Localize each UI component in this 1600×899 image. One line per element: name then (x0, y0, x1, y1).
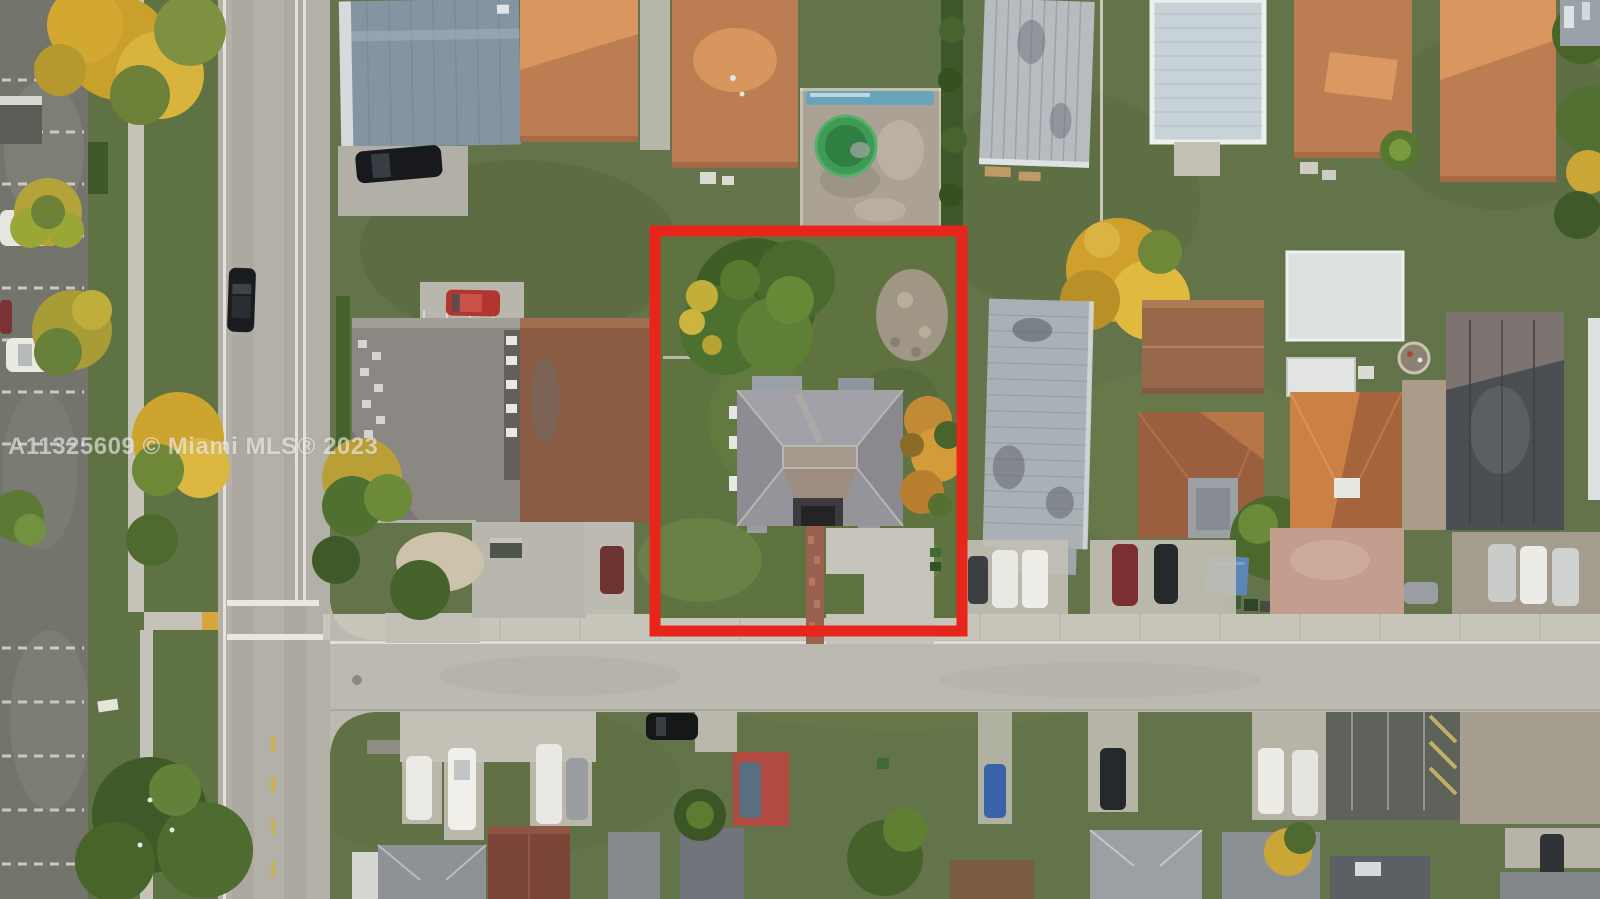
terracotta-roof-g (1440, 0, 1556, 182)
side-ac-units (729, 406, 737, 491)
subject-lot (638, 236, 965, 644)
driveway-apron-west (385, 613, 480, 643)
aerial-photo: A11325609 © Miami MLS® 2023 (0, 0, 1600, 899)
dirt-lot-southeast (1460, 712, 1600, 824)
gray-hip-roof-south-1 (378, 845, 486, 899)
brown-roof-house-north (1142, 300, 1264, 394)
parked-car-gray-partial (1404, 582, 1438, 604)
white-fence-line (1100, 0, 1103, 230)
palm-tree (1380, 130, 1420, 170)
dirt-patch (876, 269, 948, 361)
dark-asphalt-lot (1326, 712, 1460, 820)
street-parked-cars-east (958, 540, 1236, 614)
terracotta-roof-c (672, 0, 798, 185)
car-white-pickup (536, 744, 562, 824)
parked-car-silver-2 (1552, 548, 1579, 606)
car-dark-southeast (1540, 834, 1564, 876)
small-shed (490, 538, 522, 558)
parked-car-maroon (600, 546, 624, 594)
lane-line-1 (295, 0, 298, 602)
car-black-on-vertical-road (227, 268, 256, 333)
gray-hip-roof-south-2 (1090, 830, 1202, 899)
hedge-strip (938, 0, 967, 232)
silver-metal-roof-long (982, 299, 1094, 576)
manhole (352, 675, 362, 685)
car-windshield (18, 344, 32, 366)
parked-car-white-3 (1520, 546, 1547, 604)
car-bluegray-on-red-drive (739, 762, 761, 818)
hedge-block (88, 142, 108, 194)
orange-lit-roof-house (1290, 392, 1402, 534)
dark-flat-roof-building (1446, 312, 1564, 530)
duplex-south-concrete (472, 522, 586, 618)
crosswalk-bar-south (227, 634, 325, 640)
road-edge-line-north (330, 641, 1600, 644)
driveway-pad-lower (864, 574, 934, 618)
car-black-south (1100, 748, 1126, 810)
parked-car-darkgray (968, 556, 988, 604)
silver-mobile-home-roof (979, 0, 1095, 183)
terracotta-roof-b (520, 0, 638, 142)
brown-tile-roof-south (488, 826, 570, 899)
lane-line-2 (303, 0, 306, 602)
parked-car-black (1154, 544, 1178, 604)
corner-building (0, 96, 42, 144)
driveway-pad-upper (826, 528, 934, 574)
parked-car-red-sliver (0, 300, 12, 334)
car-white-4 (1258, 748, 1284, 814)
subject-house (729, 376, 903, 533)
parked-car-white-1 (992, 550, 1018, 608)
car-white-5 (1292, 750, 1318, 816)
tactile-ramp (202, 612, 218, 630)
parked-car-silver-1 (1488, 544, 1516, 602)
pool-backyard (800, 88, 942, 232)
patio-table-circle (1399, 343, 1429, 373)
top-right-gray-structure (1560, 0, 1600, 46)
crosswalk-bar-north (227, 600, 319, 606)
sandy-side-yard (1402, 380, 1448, 530)
parked-car-white-2 (1022, 550, 1048, 608)
roof-cupola (1334, 478, 1360, 498)
vertical-street (218, 0, 330, 899)
green-bin (877, 758, 889, 769)
path-between-houses (640, 0, 670, 150)
charcoal-roof-south (1330, 856, 1430, 899)
car-black-on-horizontal-road (646, 713, 698, 740)
parked-car-red (446, 290, 500, 317)
left-parking-lot (0, 0, 90, 899)
car-gray-sedan (566, 758, 588, 820)
aerial-photo-canvas (0, 0, 1600, 899)
car-white-sedan (406, 756, 432, 820)
parked-car-darkred (1112, 544, 1138, 606)
bluegray-metal-roof-house (339, 0, 522, 148)
white-roof-strip-east (1588, 318, 1600, 500)
south-concrete-pad (400, 712, 596, 762)
car-blue (984, 764, 1006, 818)
white-flat-roof (1287, 252, 1403, 340)
